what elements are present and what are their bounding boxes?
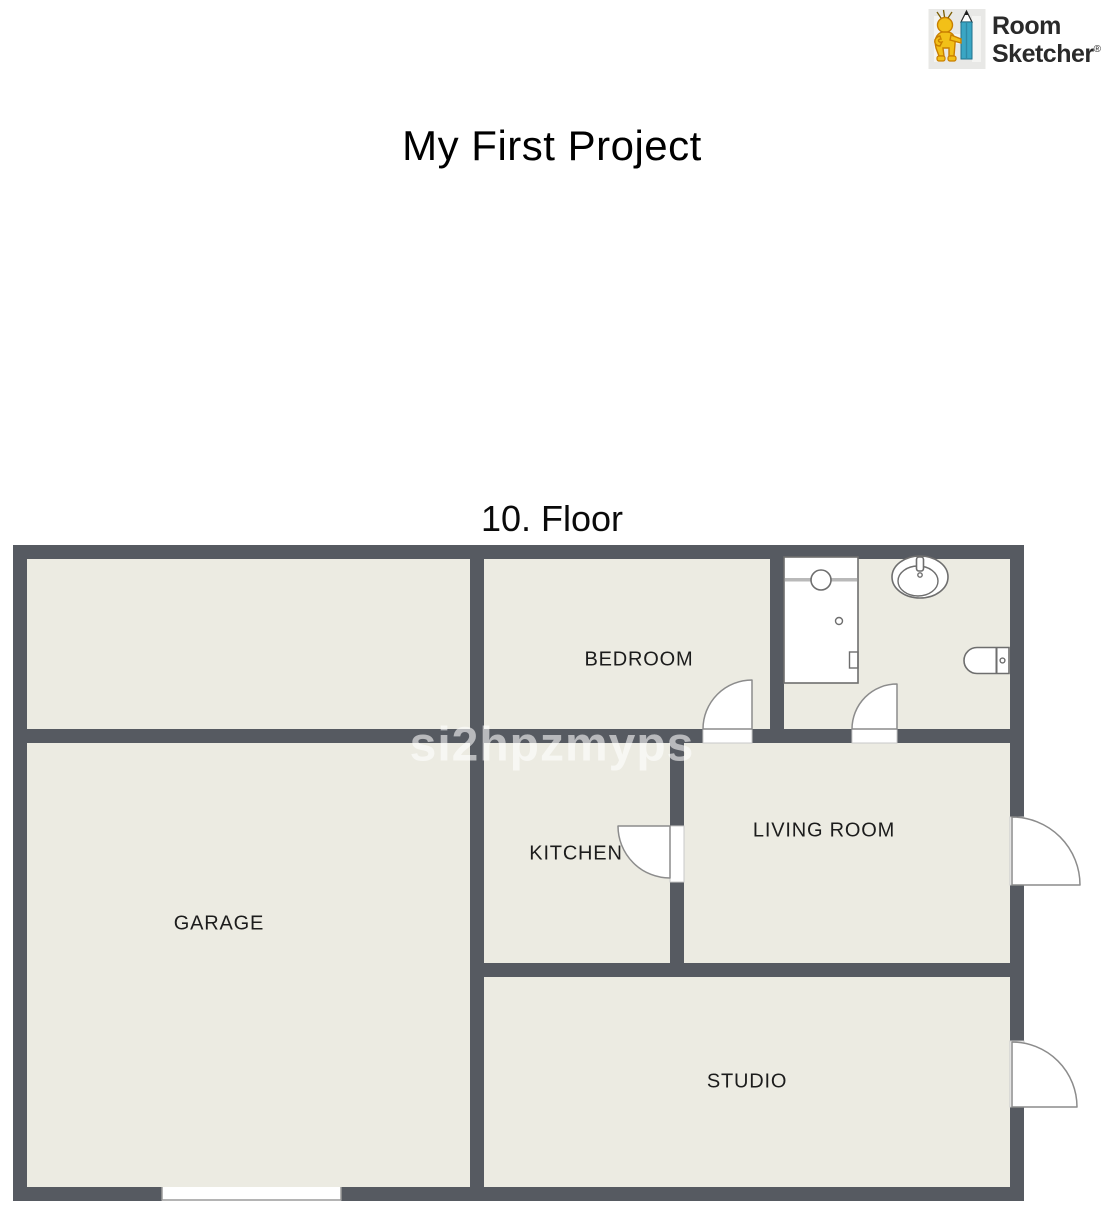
room-label-bedroom: BEDROOM bbox=[585, 649, 694, 672]
bathroom-door-opening bbox=[852, 729, 897, 743]
floor-plan-page: Room Sketcher® My First Project 10. Floo… bbox=[0, 0, 1104, 1210]
garage-door-opening bbox=[162, 1187, 341, 1201]
sink-icon bbox=[892, 556, 948, 598]
room-label-studio: STUDIO bbox=[707, 1071, 787, 1094]
room-label-kitchen: KITCHEN bbox=[529, 843, 622, 866]
living-room-entry-door bbox=[1012, 817, 1080, 885]
watermark: si2hpzmyps bbox=[410, 718, 695, 773]
floor-plan-svg bbox=[0, 0, 1104, 1210]
toilet-icon bbox=[964, 648, 1009, 674]
room-label-living-room: LIVING ROOM bbox=[753, 820, 895, 843]
shower-icon bbox=[784, 557, 858, 683]
studio-entry-door bbox=[1012, 1042, 1077, 1107]
bedroom-door-opening bbox=[703, 729, 752, 743]
floor-area bbox=[13, 545, 1024, 1201]
kitchen-door-opening bbox=[670, 826, 684, 882]
room-label-garage: GARAGE bbox=[174, 913, 264, 936]
